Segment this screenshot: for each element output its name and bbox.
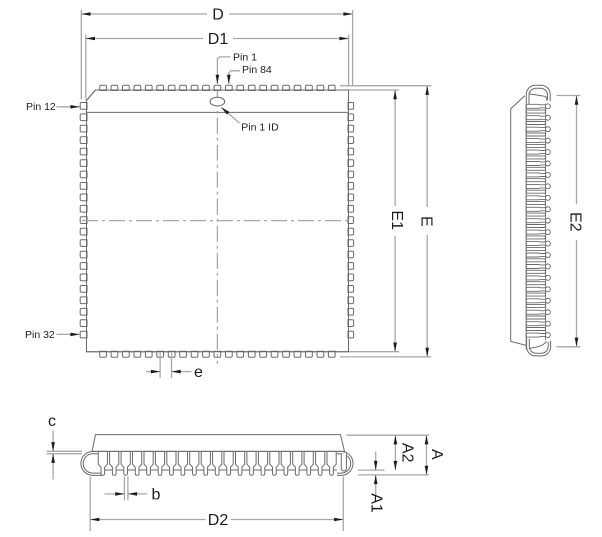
svg-text:A2: A2	[398, 443, 415, 463]
svg-text:E1: E1	[388, 210, 405, 230]
svg-text:D1: D1	[208, 31, 229, 48]
svg-text:A: A	[428, 449, 445, 460]
svg-text:D: D	[212, 7, 224, 24]
svg-text:c: c	[48, 413, 56, 430]
svg-text:b: b	[152, 487, 161, 504]
svg-text:Pin 1 ID: Pin 1 ID	[241, 121, 279, 133]
svg-text:Pin 12: Pin 12	[26, 101, 56, 113]
svg-text:E: E	[418, 216, 435, 227]
svg-text:Pin 84: Pin 84	[242, 64, 272, 76]
svg-text:A1: A1	[368, 493, 385, 513]
svg-text:D2: D2	[208, 512, 229, 529]
svg-text:E2: E2	[567, 212, 584, 232]
svg-text:Pin 1: Pin 1	[233, 52, 257, 64]
svg-text:e: e	[194, 364, 203, 381]
svg-text:Pin 32: Pin 32	[25, 329, 55, 341]
